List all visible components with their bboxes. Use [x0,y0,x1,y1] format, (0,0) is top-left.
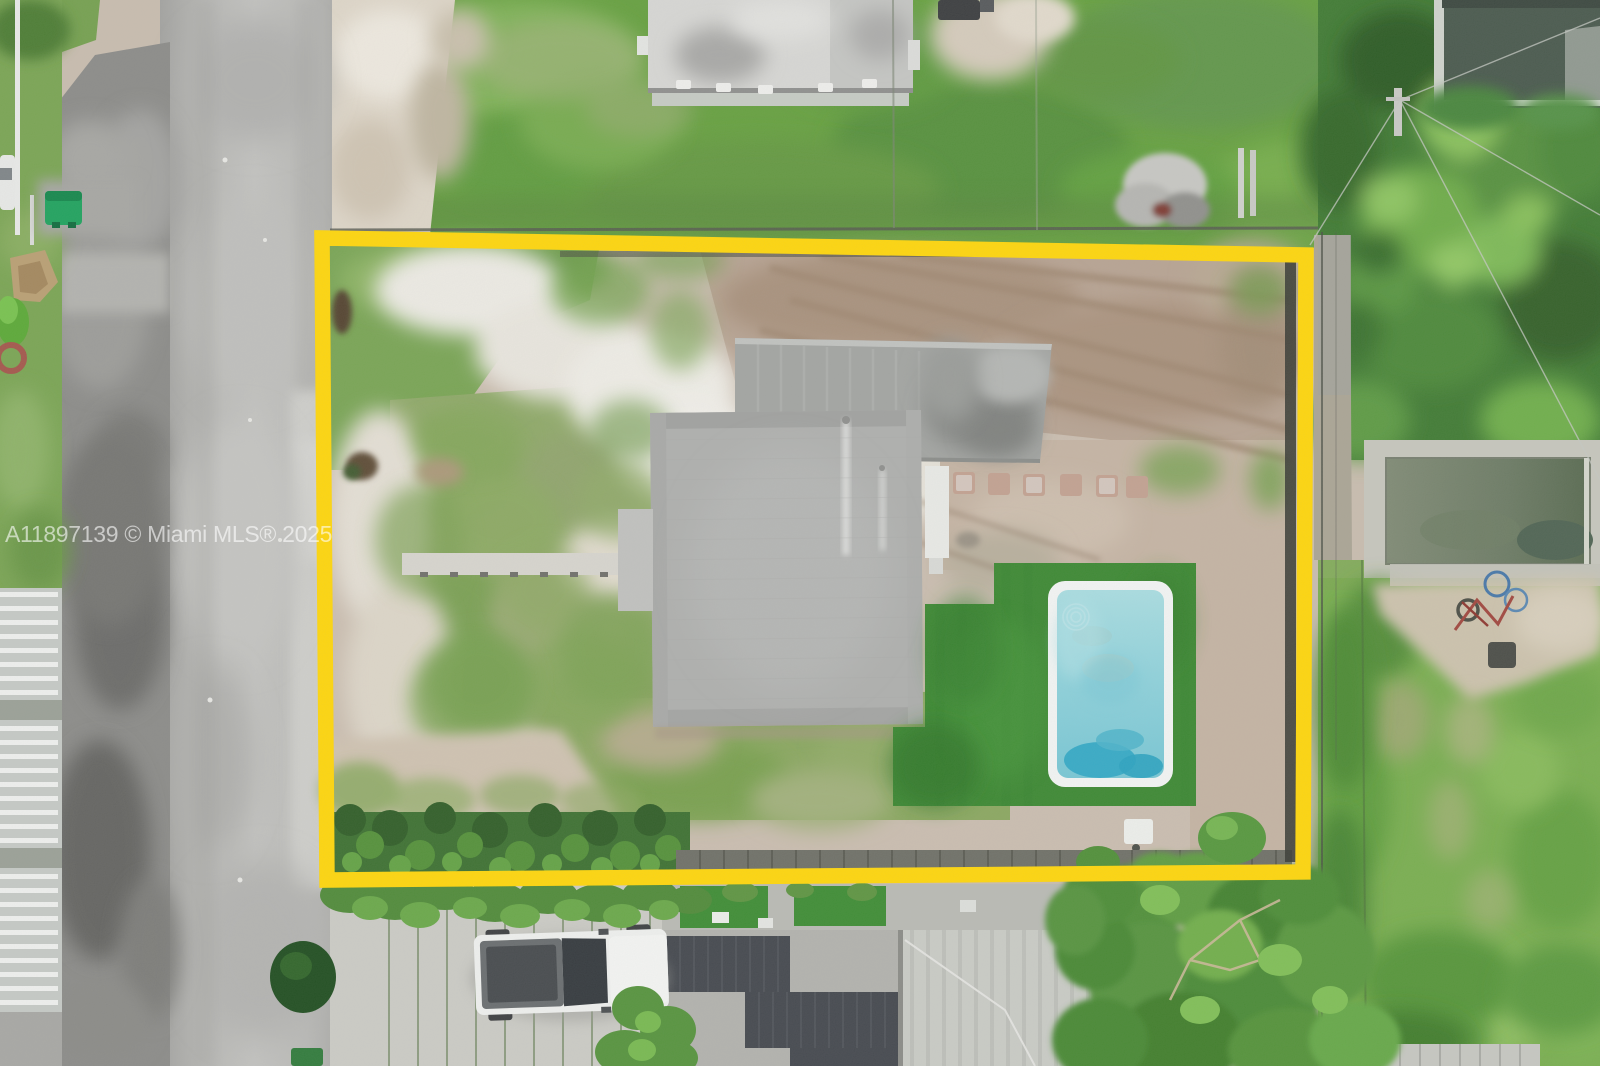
svg-text:A11897139 © Miami MLS® 2025: A11897139 © Miami MLS® 2025 [5,521,332,547]
